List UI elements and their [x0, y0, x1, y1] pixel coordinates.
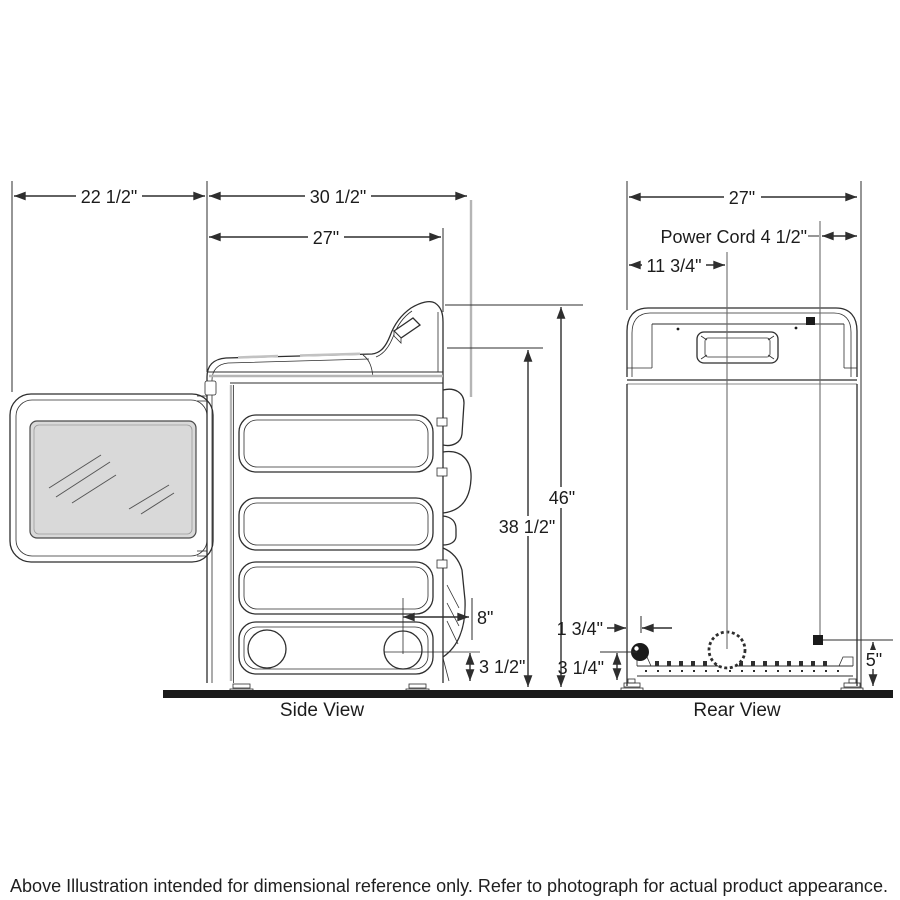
dim-exhaust-offset: 8"	[403, 608, 493, 628]
side-outline	[207, 302, 443, 683]
panel-3-inner	[244, 567, 428, 609]
power-cord-entry-highlight	[634, 646, 638, 650]
base-bracket-right	[839, 657, 853, 666]
dim-label-cabinet-depth: 27"	[313, 228, 339, 248]
dim-label-exhaust-offset: 8"	[477, 608, 493, 628]
dim-power-offset: 1 3/4"	[557, 619, 672, 639]
rear-view-drawing	[621, 308, 863, 691]
side-cabinet	[205, 302, 443, 683]
top-seam	[207, 372, 443, 383]
rear-ducts	[437, 389, 471, 681]
screw-right	[795, 327, 798, 330]
top-hinge-bracket	[205, 381, 216, 395]
back-tab-1	[437, 418, 447, 426]
dim-cord-height: 5"	[863, 642, 885, 686]
dim-power-cord: Power Cord 4 1/2"	[661, 227, 857, 247]
dim-label-total-depth: 30 1/2"	[310, 187, 366, 207]
panel-1	[239, 415, 433, 472]
screw-left	[677, 328, 680, 331]
panel-3	[239, 562, 433, 614]
hose-connector	[443, 516, 456, 545]
diagram-svg: 22 1/2" 30 1/2" 27" 46" 38 1/2" 8"	[0, 0, 900, 900]
panel-2-inner	[244, 503, 428, 545]
open-door	[10, 394, 213, 562]
dim-label-exhaust-height: 3 1/2"	[479, 657, 525, 677]
floor-line	[163, 690, 893, 698]
rear-console	[627, 308, 857, 377]
cord-exit-top	[806, 317, 815, 325]
vent-hose-loop	[443, 452, 471, 513]
dim-label-height-lid: 38 1/2"	[499, 517, 555, 537]
dim-rear-width: 27"	[629, 187, 857, 208]
side-outline-inner	[212, 359, 369, 683]
door-glass	[30, 421, 196, 538]
side-view-caption: Side View	[280, 700, 364, 721]
rear-view-caption: Rear View	[693, 700, 781, 721]
dim-exhaust-height: 3 1/2"	[470, 653, 525, 681]
panel-1-inner	[244, 420, 428, 467]
disclaimer-text: Above Illustration intended for dimensio…	[10, 876, 888, 896]
handle-cutout	[697, 332, 778, 363]
dim-label-power-cord: Power Cord 4 1/2"	[661, 227, 807, 247]
back-tab-3	[437, 560, 447, 568]
chute-louvers	[443, 585, 459, 681]
side-view-drawing	[10, 302, 480, 692]
console-base-curve	[363, 355, 373, 377]
dim-cabinet-depth: 27"	[209, 227, 441, 248]
cord-exit-bottom	[813, 635, 823, 645]
dim-label-cord-height: 5"	[866, 650, 882, 670]
upper-duct	[443, 389, 464, 445]
dim-label-height-total: 46"	[549, 488, 575, 508]
dim-label-vent-offset: 11 3/4"	[646, 256, 701, 276]
panel-2	[239, 498, 433, 550]
dim-label-door-depth: 22 1/2"	[81, 187, 137, 207]
dim-height-lid: 38 1/2"	[494, 350, 560, 687]
dim-label-power-height: 3 1/4"	[558, 658, 604, 678]
back-tab-2	[437, 468, 447, 476]
dim-power-height: 3 1/4"	[558, 653, 617, 680]
knockout-left	[248, 630, 286, 668]
dim-label-power-offset: 1 3/4"	[557, 619, 603, 639]
rear-feet	[621, 679, 863, 691]
dim-door-depth: 22 1/2"	[14, 186, 205, 207]
dim-vent-offset: 11 3/4"	[629, 255, 725, 276]
dim-total-depth: 30 1/2"	[209, 186, 467, 207]
dim-label-rear-width: 27"	[729, 188, 755, 208]
dimension-diagram: 22 1/2" 30 1/2" 27" 46" 38 1/2" 8"	[0, 0, 900, 900]
